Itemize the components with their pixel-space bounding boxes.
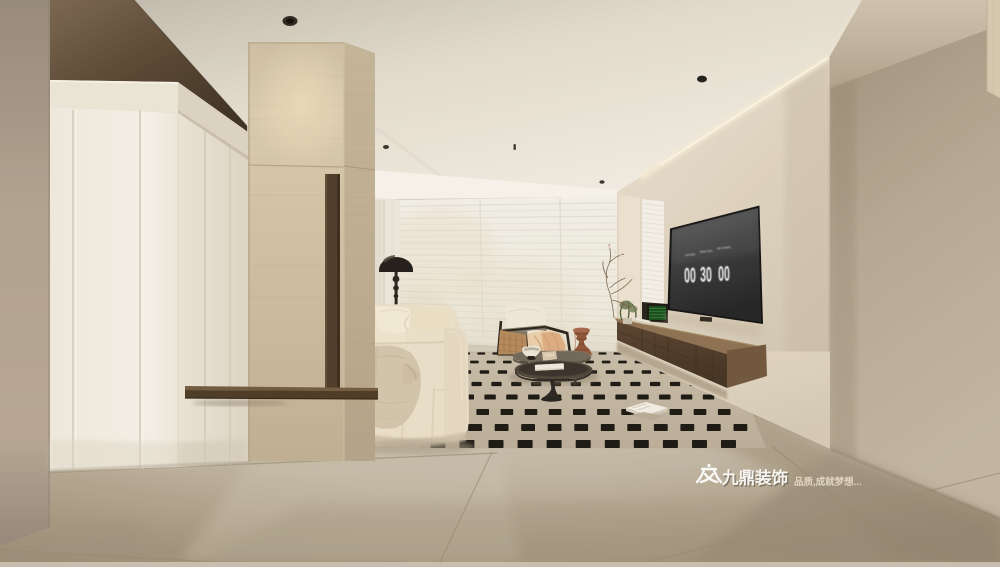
svg-text:九鼎装饰: 九鼎装饰 [721,468,788,488]
svg-text:品质,成就梦想...: 品质,成就梦想... [794,476,862,488]
